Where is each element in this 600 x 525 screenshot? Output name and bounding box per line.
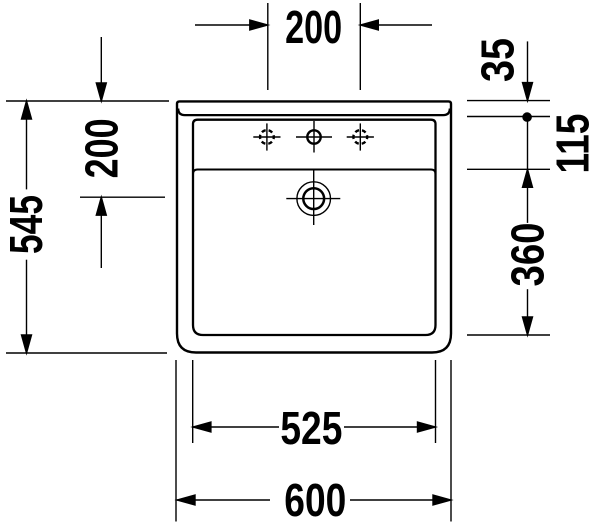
svg-text:545: 545	[0, 195, 52, 254]
svg-text:600: 600	[284, 474, 346, 525]
svg-text:115: 115	[546, 114, 598, 174]
svg-text:200: 200	[285, 1, 342, 53]
svg-text:525: 525	[280, 402, 342, 454]
svg-text:35: 35	[471, 38, 523, 82]
svg-text:200: 200	[76, 118, 128, 178]
svg-text:360: 360	[501, 223, 553, 287]
